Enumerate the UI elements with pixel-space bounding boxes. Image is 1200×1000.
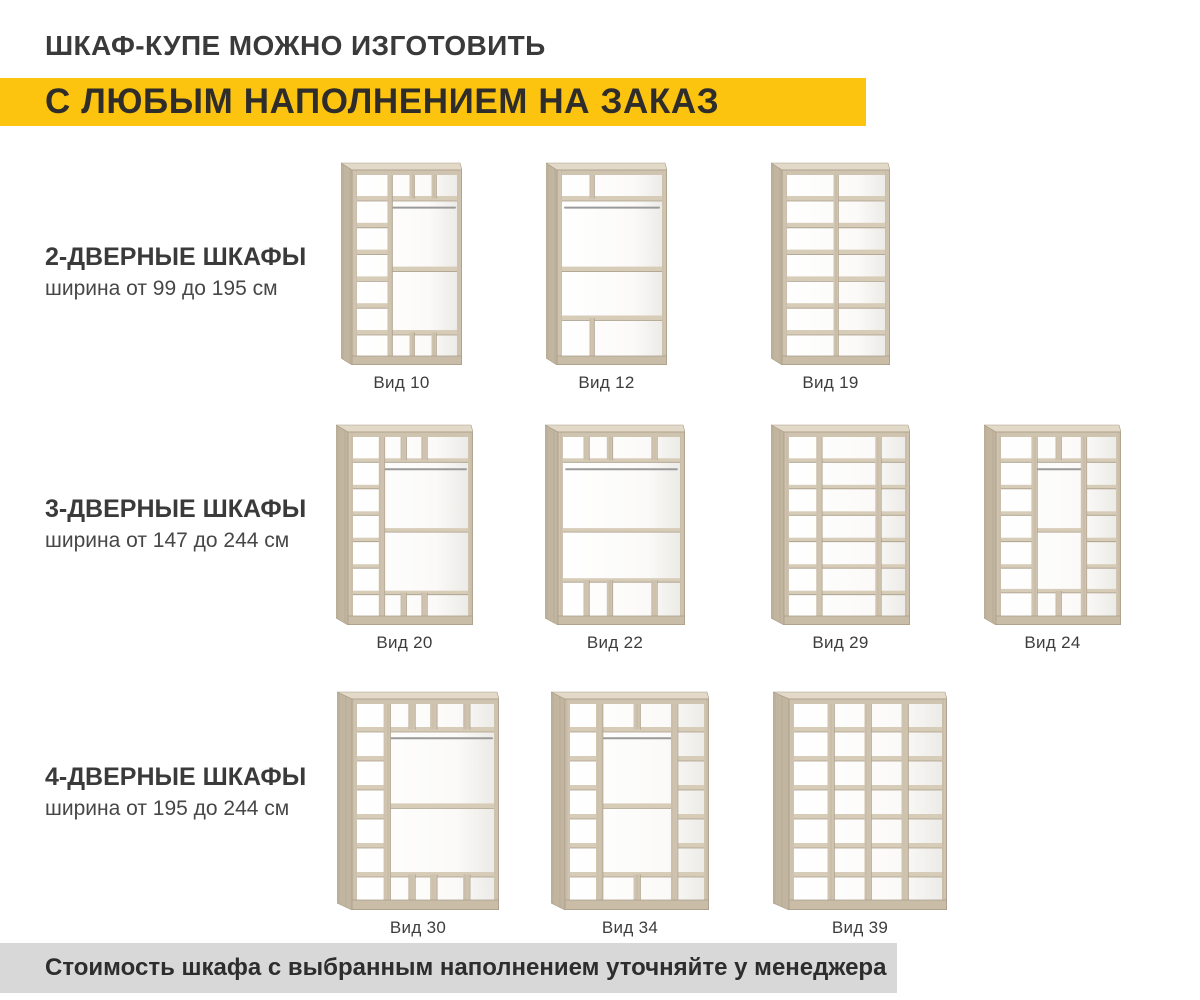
footer-text: Стоимость шкафа с выбранным наполнением … [45,954,886,982]
row-heading: 3-ДВЕРНЫЕ ШКАФЫ [45,495,306,524]
row-label-4-door: 4-ДВЕРНЫЕ ШКАФЫ ширина от 195 до 244 см [45,763,306,821]
row-label-3-door: 3-ДВЕРНЫЕ ШКАФЫ ширина от 147 до 244 см [45,495,306,553]
wardrobe-figure-label: Вид 20 [336,633,473,653]
row-subheading: ширина от 195 до 244 см [45,797,306,821]
wardrobe-figure [773,691,947,910]
wardrobe-figure-label: Вид 22 [545,633,685,653]
infographic-page: ШКАФ-КУПЕ МОЖНО ИЗГОТОВИТЬ С ЛЮБЫМ НАПОЛ… [0,0,1200,1000]
wardrobe-figure [546,162,667,365]
wardrobe-figure [984,424,1121,625]
banner-text: С ЛЮБЫМ НАПОЛНЕНИЕМ НА ЗАКАЗ [45,82,719,122]
wardrobe-figure-label: Вид 39 [773,918,947,938]
wardrobe-figure-label: Вид 30 [337,918,499,938]
wardrobe-figure [545,424,685,625]
wardrobe-figure-label: Вид 29 [771,633,910,653]
wardrobe-figure [336,424,473,625]
wardrobe-figure [771,162,890,365]
wardrobe-figure-label: Вид 19 [771,373,890,393]
highlight-banner: С ЛЮБЫМ НАПОЛНЕНИЕМ НА ЗАКАЗ [0,78,866,126]
row-label-2-door: 2-ДВЕРНЫЕ ШКАФЫ ширина от 99 до 195 см [45,243,306,301]
wardrobe-figure-label: Вид 12 [546,373,667,393]
row-heading: 4-ДВЕРНЫЕ ШКАФЫ [45,763,306,792]
wardrobe-figure [771,424,910,625]
wardrobe-figure-label: Вид 10 [341,373,462,393]
row-heading: 2-ДВЕРНЫЕ ШКАФЫ [45,243,306,272]
wardrobe-figure-label: Вид 34 [551,918,709,938]
page-title: ШКАФ-КУПЕ МОЖНО ИЗГОТОВИТЬ [45,30,546,62]
footer-note: Стоимость шкафа с выбранным наполнением … [0,943,897,993]
wardrobe-figure [337,691,499,910]
row-subheading: ширина от 99 до 195 см [45,277,306,301]
wardrobe-figure [551,691,709,910]
row-subheading: ширина от 147 до 244 см [45,529,306,553]
wardrobe-figure [341,162,462,365]
wardrobe-figure-label: Вид 24 [984,633,1121,653]
